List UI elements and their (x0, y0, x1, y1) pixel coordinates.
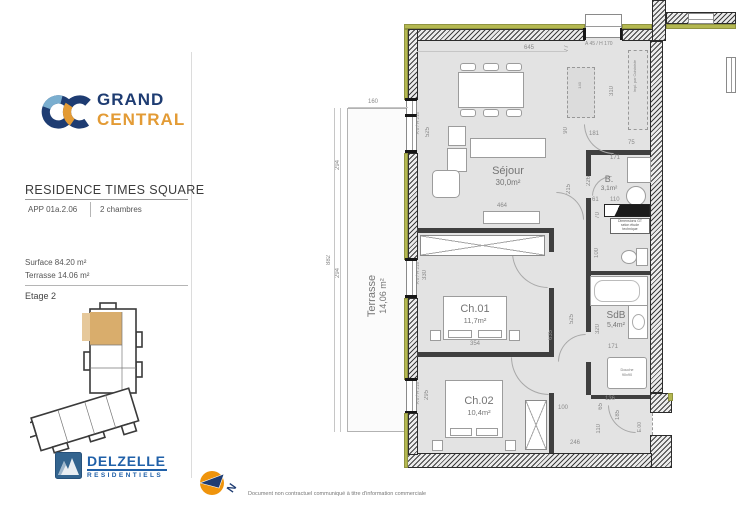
room-label-wc: B. 3,1m² (594, 174, 624, 193)
wall-top-right (622, 29, 653, 41)
north-compass-icon: N (198, 468, 244, 504)
nightstand (509, 330, 520, 341)
sideboard (483, 211, 540, 224)
dim-label: 181 (589, 131, 599, 137)
dim-label: 464 (497, 203, 507, 209)
dim-label: 330 (422, 270, 428, 280)
dim-label: 136 (605, 396, 615, 402)
room-area: 30,0m² (463, 178, 553, 188)
nightstand (432, 440, 443, 451)
window-tick (405, 98, 417, 101)
north-letter: N (225, 482, 239, 495)
unit-type: 2 chambres (100, 205, 142, 214)
delzelle-rule (87, 469, 167, 471)
wall-insulation (666, 24, 736, 29)
key-plan-unit-highlight (90, 312, 122, 345)
toilet-tank (636, 248, 648, 266)
room-name: Séjour (463, 165, 553, 178)
wall-sejour-ch01 (417, 228, 551, 233)
coffee-table (448, 126, 466, 146)
dim-label: 294 (335, 160, 341, 170)
wall-left-seg4 (408, 413, 418, 455)
shower: Douche 90x90 (607, 357, 647, 389)
dim-label: 354 (470, 341, 480, 347)
dim-label: 310 (609, 86, 615, 96)
nightstand (430, 330, 441, 341)
terrace-surface-label: Terrasse 14.06 m² (25, 271, 89, 280)
dining-chair (483, 109, 499, 117)
brand-word-grand: GRAND (97, 90, 164, 110)
wall-corridor-a (549, 228, 554, 252)
pillow (478, 330, 502, 338)
apartment-divider (90, 202, 91, 217)
dim-label: 61 (592, 197, 599, 203)
dim-label: 215 (566, 184, 572, 194)
window-neighbour-right (726, 57, 736, 93)
window-top (585, 14, 622, 38)
dim-label: 75 (628, 140, 635, 146)
dim-label: 295 (424, 390, 430, 400)
dim-label: 525 (569, 314, 575, 324)
washbasin-round (626, 186, 646, 206)
lounge-chair (432, 170, 460, 198)
wall-left-seg3 (408, 298, 418, 380)
wall-sdb-hall (591, 395, 650, 399)
wall-bottom (404, 453, 652, 468)
room-area: 14,06 m² (378, 278, 388, 314)
dim-label: 77 (564, 45, 570, 52)
wall-corridor-c (549, 393, 554, 453)
wardrobe-ch01 (420, 235, 545, 256)
dim-label: 171 (608, 344, 618, 350)
window-label-sejour: A 0 / H 215 (416, 112, 421, 134)
room-label-terrasse: Terrasse 14,06 m² (359, 241, 395, 351)
dim-label: 70 (595, 212, 601, 219)
wall-insulation (668, 393, 673, 401)
floorplan-page: GRAND CENTRAL RESIDENCE TIMES SQUARE APP… (0, 0, 736, 520)
entrance-recess (652, 413, 672, 435)
wall-corridor-b (549, 288, 554, 357)
dim-label: 635 (548, 330, 554, 340)
apartment-number: APP 01a.2.06 (28, 205, 77, 214)
wall-bath-a (586, 152, 591, 176)
entrance-door-label: E.00 (638, 422, 643, 432)
panel-divider (191, 52, 192, 478)
wall-right-bottom (650, 435, 672, 468)
dim-label: 645 (524, 45, 534, 51)
dim-label: 65 (598, 403, 604, 410)
technical-shaft (604, 204, 650, 217)
window-neighbour (688, 13, 714, 24)
room-name: SdB (596, 310, 636, 322)
dim-label: 246 (570, 440, 580, 446)
info-rule (25, 285, 188, 286)
dim-label: 171 (610, 155, 620, 161)
wall-wc-sdb (591, 271, 650, 275)
kitchen-island (567, 67, 595, 118)
dining-chair (506, 109, 522, 117)
room-name: Ch.02 (450, 395, 508, 408)
room-label-ch02: Ch.02 10,4m² (450, 395, 508, 417)
dim-label: 110 (610, 197, 620, 203)
pillow (448, 330, 472, 338)
shaft-note: Dimensions GT selon étude technique (610, 218, 650, 234)
dim-label: 110 (596, 424, 602, 434)
room-label-ch01: Ch.01 11,7m² (440, 303, 510, 325)
room-label-sejour: Séjour 30,0m² (463, 165, 553, 188)
dim-line (348, 107, 408, 108)
window-tick (405, 378, 417, 381)
wc-cabinet (627, 157, 651, 183)
kitchen-island-dim: 140 (578, 82, 582, 89)
dim-label: 525 (425, 127, 431, 137)
delzelle-name: DELZELLE (87, 453, 166, 469)
window-label-ch01: A 0 / H 215 (416, 262, 421, 284)
dining-table (458, 72, 524, 108)
wall-bath-c (586, 362, 591, 395)
dining-chair (460, 109, 476, 117)
dim-line (417, 51, 567, 52)
wardrobe-ch02 (525, 400, 547, 450)
surface-label: Surface 84.20 m² (25, 258, 86, 267)
title-rule (25, 199, 188, 200)
dim-label: 294 (335, 268, 341, 278)
window-label-top: A 45 / H 170 (585, 42, 613, 47)
wall-top-left (404, 29, 585, 41)
brand-word-central: CENTRAL (97, 110, 185, 130)
wall-bath-b (586, 198, 591, 332)
key-plan-terrace-highlight (82, 313, 90, 341)
dim-label: 185 (615, 410, 621, 420)
wall-left-seg2 (408, 153, 418, 260)
dim-label: 100 (558, 405, 568, 411)
pillow (476, 428, 498, 436)
wall-right (650, 41, 663, 393)
dim-label: 90 (563, 127, 569, 134)
room-name: Terrasse (366, 275, 378, 317)
wall-neighbour-vertical (652, 0, 666, 41)
delzelle-sub: RESIDENTIELS (87, 472, 163, 479)
shower-label: Douche 90x90 (620, 368, 633, 377)
sofa (470, 138, 546, 158)
dim-label: 100 (594, 248, 600, 258)
dining-chair (506, 63, 522, 71)
kitchen-counter (628, 50, 648, 130)
dim-label: 160 (368, 99, 378, 105)
room-area: 5,4m² (596, 322, 636, 330)
residence-title: RESIDENCE TIMES SQUARE (25, 183, 204, 197)
bathtub-inner (594, 280, 640, 302)
room-name: B. (594, 174, 624, 185)
room-name: Ch.01 (440, 303, 510, 316)
kitchen-note: Impl. par Cuisiniste (634, 60, 638, 92)
dim-label: 882 (326, 255, 332, 265)
toilet-bowl (621, 250, 637, 264)
wall-left-seg1 (408, 29, 418, 100)
nightstand (505, 440, 516, 451)
room-area: 3,1m² (594, 185, 624, 193)
dim-label: 226 (586, 176, 592, 186)
delzelle-logo-icon (55, 452, 82, 479)
grand-central-logo-mark (40, 84, 94, 138)
room-area: 11,7m² (440, 316, 510, 325)
disclaimer-text: Document non contractuel communiqué à ti… (248, 491, 426, 497)
dim-label: 320 (595, 324, 601, 334)
dining-chair (460, 63, 476, 71)
dining-chair (483, 63, 499, 71)
room-label-sdb: SdB 5,4m² (596, 310, 636, 330)
pillow (450, 428, 472, 436)
window-label-ch02: A 0 / H 215 (416, 382, 421, 404)
window-tick (583, 28, 586, 40)
window-tick (405, 258, 417, 261)
room-area: 10,4m² (450, 408, 508, 417)
key-plan (30, 300, 165, 458)
